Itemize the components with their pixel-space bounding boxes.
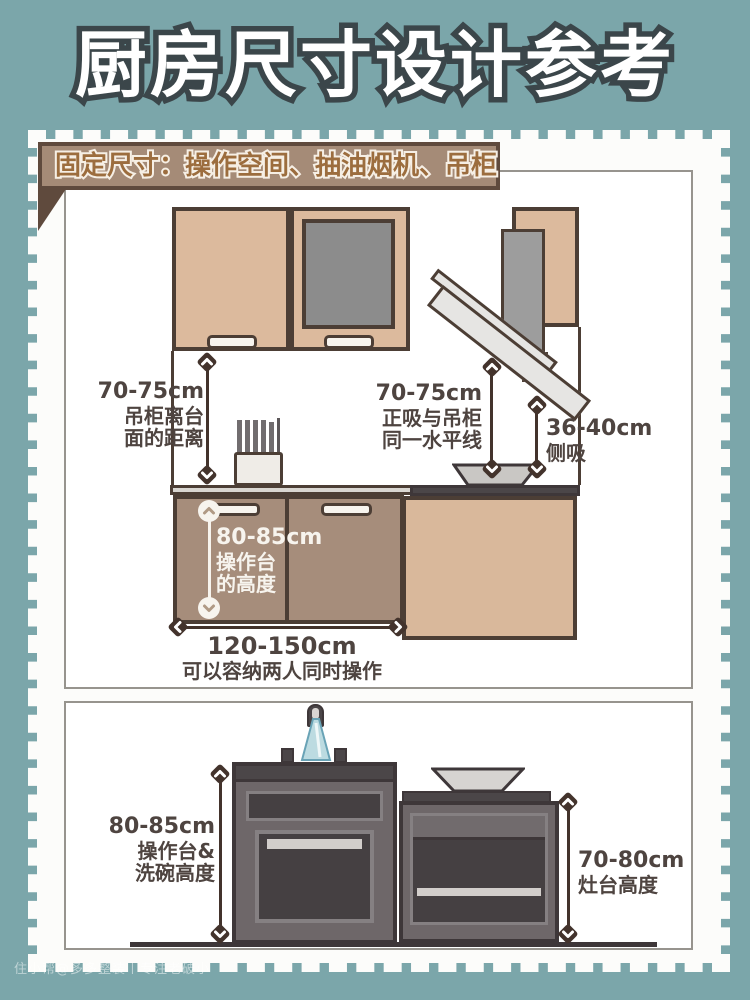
measure-line bbox=[490, 367, 493, 469]
knife-block bbox=[234, 452, 283, 486]
dishwasher-door bbox=[255, 830, 374, 923]
stove-handle-bar bbox=[417, 888, 541, 896]
fixed-dimensions-diagram: 70-75cm 吊柜离台 面的距离 70-75cm 正吸与吊柜 同一水平线 36… bbox=[64, 170, 693, 689]
counter-width-label: 120-150cm 可以容纳两人同时操作 bbox=[152, 633, 412, 682]
side-hood-label: 36-40cm 侧吸 bbox=[546, 417, 676, 464]
wall-cabinet-left bbox=[172, 207, 290, 351]
dishwasher-drawer bbox=[246, 791, 383, 821]
sink-countertop bbox=[236, 766, 393, 782]
cabinet-handle bbox=[207, 335, 257, 349]
section-banner: 固定尺寸：操作空间、抽油烟机、吊柜 bbox=[38, 142, 500, 190]
stove-drawer-band bbox=[413, 816, 545, 840]
water-stream bbox=[299, 717, 333, 763]
arrow-up-icon bbox=[208, 762, 232, 786]
measure-line bbox=[178, 626, 398, 629]
glass-door-panel bbox=[302, 219, 395, 329]
stove-front bbox=[410, 813, 548, 925]
arrow-down-icon bbox=[480, 457, 504, 481]
stove-height-label: 70-80cm 灶台高度 bbox=[578, 849, 698, 896]
measure-line bbox=[206, 360, 209, 477]
arrow-up-icon bbox=[480, 355, 504, 379]
arrow-down-icon bbox=[556, 922, 580, 946]
arrow-up-icon bbox=[525, 393, 549, 417]
sink-knob bbox=[334, 748, 347, 763]
arrow-up-icon bbox=[556, 790, 580, 814]
sink-height-label: 80-85cm 操作台& 洗碗高度 bbox=[71, 815, 215, 884]
watermark: 住小帮@多多整装丨专注老破小 bbox=[14, 958, 210, 977]
kitchen-dimension-poster: 厨房尺寸设计参考 固定尺寸：操作空间、抽油烟机、吊柜 bbox=[0, 0, 750, 1000]
door-handle-bar bbox=[267, 839, 362, 849]
sink-knob bbox=[281, 748, 294, 763]
counter-height-label: 80-85cm 操作台 的高度 bbox=[216, 526, 356, 595]
knife bbox=[261, 420, 266, 454]
arrow-up-icon bbox=[197, 499, 221, 523]
knife bbox=[277, 418, 280, 454]
bowl bbox=[431, 767, 525, 794]
arrow-up-icon bbox=[195, 350, 219, 374]
sink-unit bbox=[232, 762, 397, 944]
knife bbox=[253, 420, 258, 454]
knife bbox=[269, 422, 274, 454]
stove-unit bbox=[399, 801, 559, 943]
arrow-down-icon bbox=[197, 596, 221, 620]
cabinet-handle bbox=[324, 335, 374, 349]
arrow-down-icon bbox=[195, 463, 219, 487]
section-banner-label: 固定尺寸：操作空间、抽油烟机、吊柜 bbox=[42, 146, 496, 186]
knife bbox=[237, 420, 242, 454]
measure-line bbox=[567, 802, 570, 934]
appliance-heights-diagram: 80-85cm 操作台& 洗碗高度 70-80cm 灶台高度 bbox=[64, 701, 693, 950]
hang-gap-label: 70-75cm 吊柜离台 面的距离 bbox=[76, 380, 204, 449]
measure-line bbox=[219, 774, 222, 934]
cabinet-handle bbox=[321, 503, 372, 516]
arrow-down-icon bbox=[208, 922, 232, 946]
page-title: 厨房尺寸设计参考 bbox=[0, 6, 750, 111]
measure-line bbox=[208, 511, 211, 608]
hood-gap-label: 70-75cm 正吸与吊柜 同一水平线 bbox=[336, 382, 482, 451]
knife bbox=[245, 420, 250, 454]
stove-base-cabinet bbox=[402, 496, 577, 640]
